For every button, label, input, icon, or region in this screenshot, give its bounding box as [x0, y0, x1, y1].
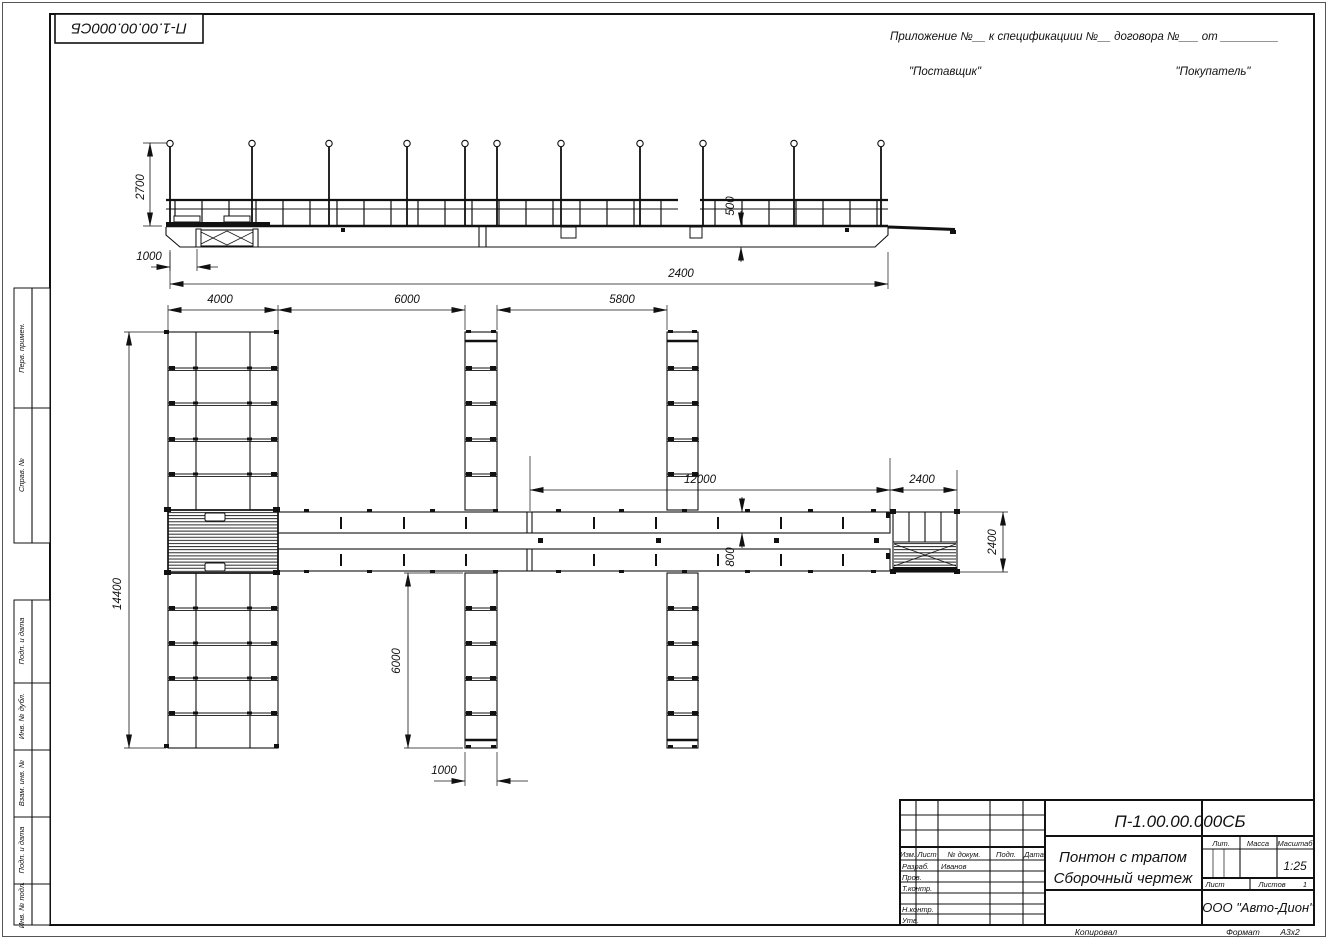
dim-1000-elev: 1000 — [136, 251, 162, 263]
tb-row-nkontr: Н.контр. — [902, 905, 934, 914]
appendix-line: Приложение №__ к спецификациии №__ догов… — [890, 31, 1279, 43]
dim-1000-finger: 1000 — [431, 765, 457, 777]
stamp-podp-data-2: Подп. и дата — [17, 827, 26, 874]
stamp-inv-podl: Инв. № подл. — [17, 882, 26, 929]
deck-hatch — [205, 513, 225, 521]
dim-12000: 12000 — [684, 474, 717, 486]
dim-2400-trap-width: 2400 — [987, 529, 999, 556]
tb-row-utv: Утв. — [901, 916, 919, 925]
tb-title-line1: Понтон с трапом — [1059, 849, 1187, 866]
buyer-label: "Покупатель" — [1176, 66, 1252, 78]
dim-2400-elev: 2400 — [667, 268, 694, 280]
stamp-inv-dubl: Инв. № дубл. — [17, 693, 26, 739]
tb-title-line2: Сборочный чертеж — [1054, 870, 1193, 887]
deck-hatch — [205, 563, 225, 571]
dim-2700: 2700 — [135, 174, 147, 201]
dim-500: 500 — [725, 196, 737, 216]
format-label: Формат — [1226, 927, 1260, 937]
tb-row-prov: Пров. — [902, 873, 922, 882]
main-pontoon — [164, 507, 280, 575]
doc-number-top-box: П-1.00.00.000СБ — [55, 14, 203, 43]
tb-row-razrab: Разраб. — [902, 862, 929, 871]
dim-14400: 14400 — [112, 577, 124, 610]
tb-razrab-name: Иванов — [941, 862, 967, 871]
doc-number-top: П-1.00.00.000СБ — [71, 20, 187, 37]
dim-5800: 5800 — [609, 294, 635, 306]
tb-col-doc: № докум. — [947, 850, 980, 859]
copied-label: Копировал — [1075, 927, 1117, 937]
tb-row-tkontr: Т.контр. — [902, 884, 932, 893]
tb-sheets-value: 1 — [1303, 880, 1307, 889]
tb-scale-label: Масштаб — [1277, 839, 1313, 848]
tb-col-podp: Подп. — [996, 850, 1016, 859]
tb-doc-number: П-1.00.00.000СБ — [1114, 812, 1245, 831]
drawing-sheet: П-1.00.00.000СБ Перв. примен. Справ. № П… — [0, 0, 1328, 939]
margin-stamps: Перв. примен. Справ. № Подп. и дата Инв.… — [14, 288, 50, 928]
page-frame: П-1.00.00.000СБ Перв. примен. Справ. № П… — [3, 3, 1326, 937]
tb-sheet-label: Лист — [1204, 880, 1224, 889]
stamp-sprav-no: Справ. № — [17, 458, 26, 492]
stamp-podp-data-1: Подп. и дата — [17, 618, 26, 665]
format-value: А3х2 — [1279, 927, 1300, 937]
tb-scale-value: 1:25 — [1283, 859, 1307, 873]
dim-800: 800 — [725, 547, 737, 567]
title-block: П-1.00.00.000СБ Изм. Лист № докум. Подп.… — [900, 800, 1315, 925]
tb-mass-label: Масса — [1247, 839, 1269, 848]
supplier-label: "Поставщик" — [909, 66, 982, 78]
stamp-perv-primen: Перв. примен. — [17, 323, 26, 373]
dim-6000-finger: 6000 — [391, 648, 403, 674]
tb-col-list: Лист — [916, 850, 936, 859]
dim-6000: 6000 — [394, 294, 420, 306]
tb-lit-label: Лит. — [1211, 839, 1230, 848]
dim-4000: 4000 — [207, 294, 233, 306]
tb-sheets-label: Листов — [1257, 880, 1285, 889]
tb-company: ООО "Авто-Дион" — [1202, 900, 1315, 915]
tb-col-data: Дата — [1023, 850, 1044, 859]
stamp-vzam-inv: Взам. инв. № — [17, 760, 26, 806]
tb-col-izm: Изм. — [900, 850, 916, 859]
dim-2400-trap-len: 2400 — [908, 474, 935, 486]
